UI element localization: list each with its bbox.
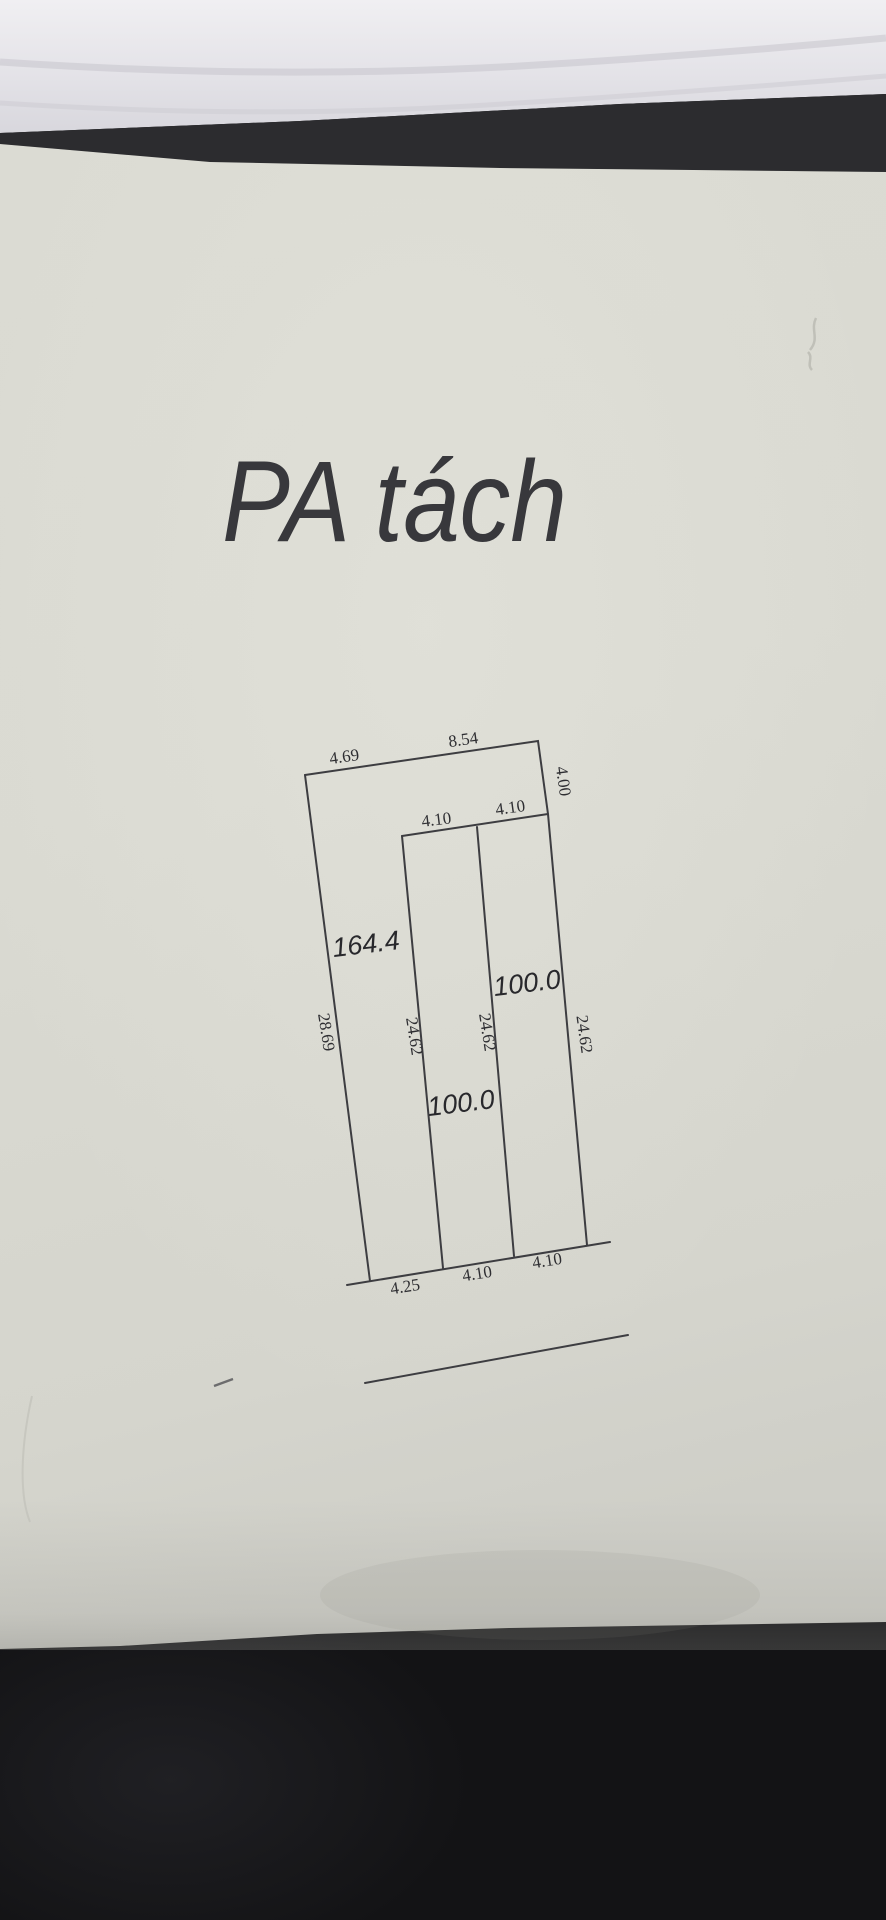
paper-edge-smudge xyxy=(320,1550,760,1640)
photo-of-survey-sketch: PA tách 4.69 8.54 4.00 4.10 4.10 28.69 2… xyxy=(0,0,886,1920)
paper-highlight xyxy=(0,144,886,1649)
parcel-diagram: PA tách 4.69 8.54 4.00 4.10 4.10 28.69 2… xyxy=(0,0,886,1920)
dim-notch-left: 4.10 xyxy=(420,808,452,830)
drawing-title: PA tách xyxy=(222,438,567,566)
